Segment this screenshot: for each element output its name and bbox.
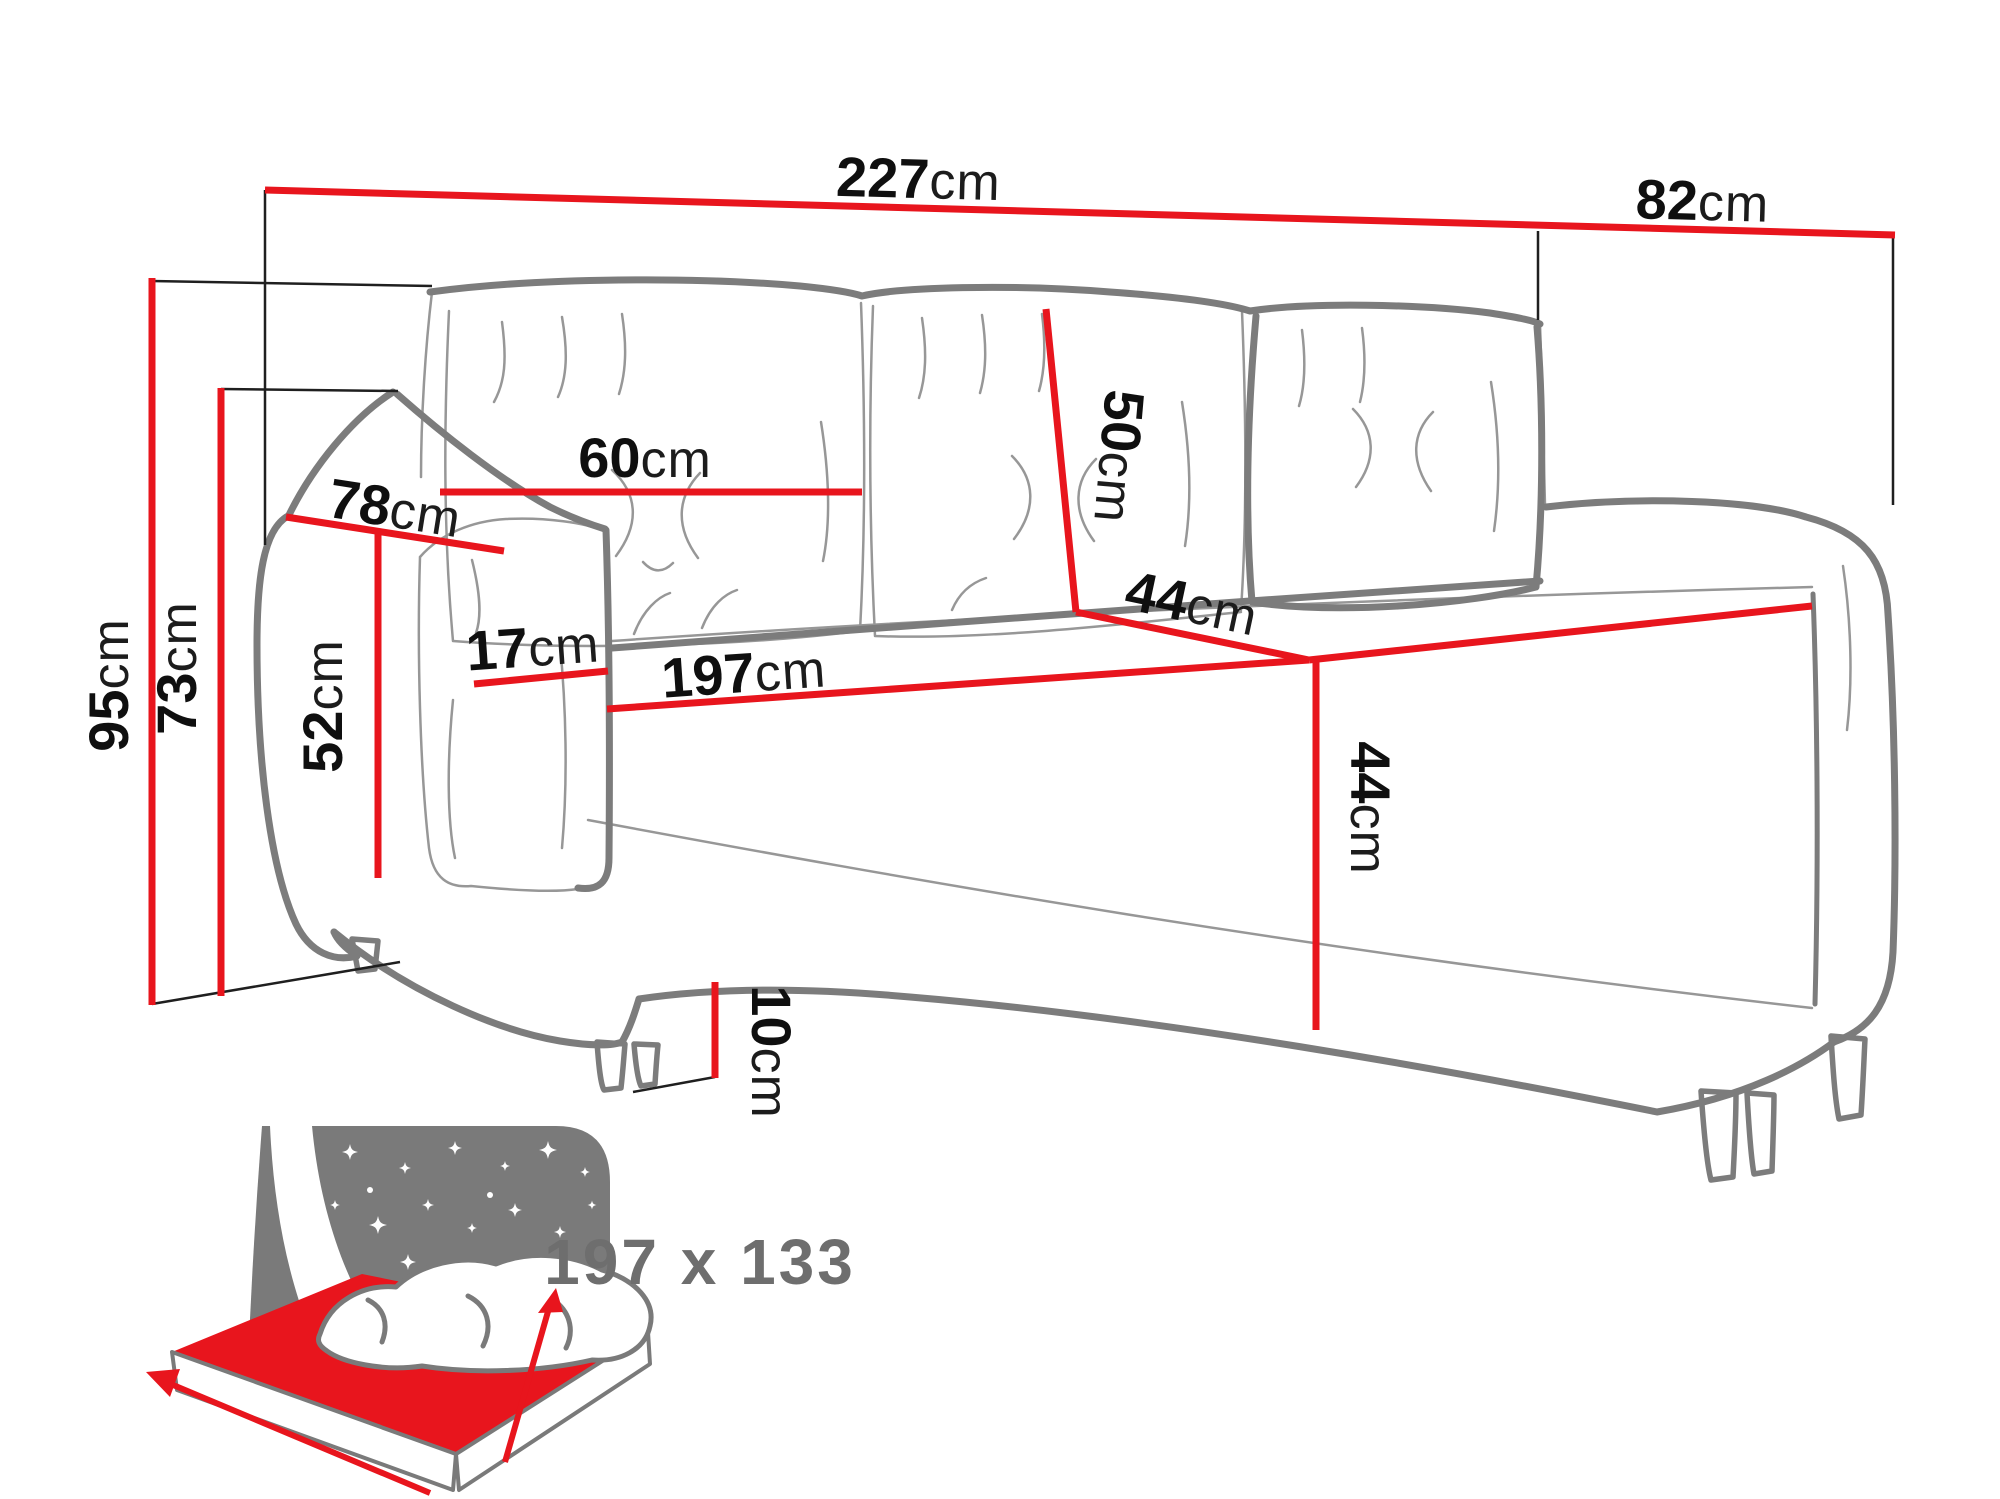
- star-dot: [327, 1237, 333, 1243]
- armrest-inner-edge: [578, 530, 609, 889]
- marker-lines: [152, 190, 1893, 1092]
- marker-floor-left: [152, 962, 400, 1004]
- label-armrest-width: 17cm: [464, 610, 602, 682]
- label-seat-width: 197cm: [659, 635, 828, 709]
- sofa-leg-front-left-b: [634, 1044, 658, 1086]
- star-dot: [487, 1192, 493, 1198]
- label-armrest-height: 52cm: [291, 639, 354, 773]
- label-total-width: 227cm: [835, 145, 1001, 212]
- label-total-depth: 82cm: [1635, 167, 1770, 233]
- sofa-leg-front-left-a: [597, 1042, 625, 1090]
- backrest-left-edge: [421, 292, 432, 477]
- sleeping-function-icon: 197 x 133: [146, 1126, 856, 1493]
- label-back-cushion-width: 60cm: [578, 426, 712, 489]
- base-front-corner: [622, 999, 639, 1042]
- right-armrest-outline: [1546, 501, 1895, 1042]
- base-bottom-front: [639, 990, 1834, 1112]
- dimension-diagram-page: 227cm 82cm 60cm 50cm 78cm 17cm 197cm 44c…: [0, 0, 2000, 1499]
- cushion-3-wrinkles: [1299, 328, 1498, 531]
- label-leg-height: 10cm: [740, 985, 803, 1119]
- sofa-dimension-diagram: 227cm 82cm 60cm 50cm 78cm 17cm 197cm 44c…: [0, 0, 2000, 1499]
- armrest-front-face: [419, 519, 604, 891]
- base-seam: [588, 820, 1812, 1008]
- label-back-cushion-height: 50cm: [1082, 387, 1156, 526]
- backrest-top-edge: [430, 280, 1540, 324]
- label-back-height: 73cm: [145, 601, 208, 735]
- sofa-leg-rear-right: [1831, 1036, 1865, 1119]
- length-arrow-head-icon: [146, 1369, 180, 1397]
- dimension-lines: [152, 190, 1895, 1078]
- sofa-drawing: [257, 280, 1895, 1180]
- label-seat-height: 44cm: [1339, 741, 1402, 875]
- dim-line-back-cushion-height: [1046, 309, 1076, 612]
- label-total-height: 95cm: [77, 618, 140, 752]
- sofa-leg-front-right-b: [1747, 1093, 1774, 1174]
- star-dot: [367, 1187, 373, 1193]
- marker-back-height-top: [221, 389, 398, 391]
- sleeping-area-label: 197 x 133: [544, 1226, 856, 1298]
- dim-line-seat-front: [1309, 606, 1812, 660]
- marker-total-height-top: [152, 281, 432, 286]
- right-armrest-inner-edge: [1813, 594, 1817, 1004]
